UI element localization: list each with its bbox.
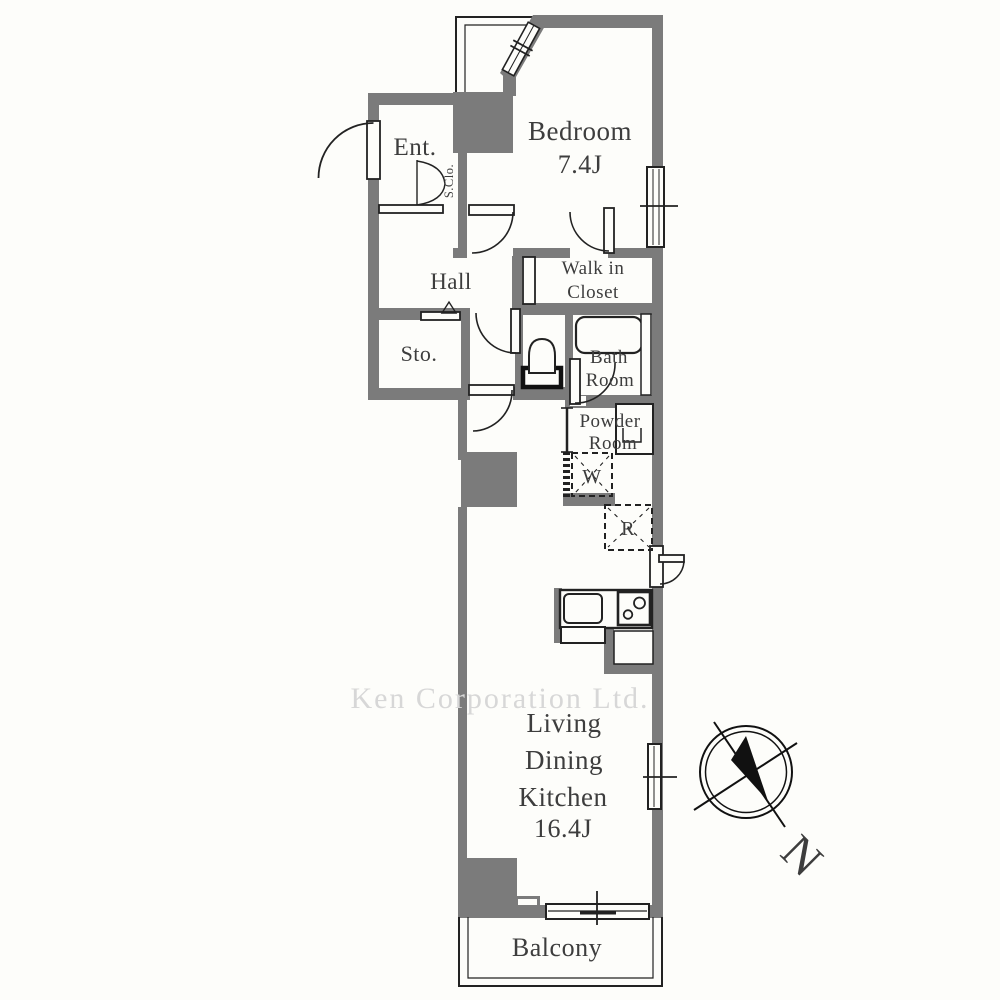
bathroom-label-1: Bath — [590, 347, 628, 368]
compass-needle-icon — [731, 736, 768, 801]
wc-door-icon — [476, 309, 520, 353]
shoe-closet-label: S.Clo. — [442, 164, 456, 198]
powder-room-label-1: Powder — [579, 411, 640, 432]
entrance-step — [379, 205, 443, 213]
toilet-icon — [523, 339, 561, 387]
pillar — [458, 858, 517, 907]
walk-in-closet-label-1: Walk in — [562, 258, 625, 279]
pillar — [453, 92, 513, 153]
ldk-label-3: Kitchen — [519, 782, 608, 812]
powder-room-label-2: Room — [589, 433, 637, 454]
refrigerator-label: R — [621, 518, 635, 540]
bathroom-label-2: Room — [586, 370, 634, 391]
storage-label: Sto. — [401, 341, 438, 366]
washer-label: W — [582, 466, 601, 488]
ldk-label-2: Dining — [525, 745, 603, 775]
shoe-closet-bifold-icon — [417, 160, 445, 206]
bedroom-size-label: 7.4J — [558, 150, 603, 179]
hall-label: Hall — [430, 269, 472, 294]
wic-sliding-panel-icon — [523, 257, 535, 304]
watermark: Ken Corporation Ltd. — [350, 682, 649, 715]
ldk-label-1: Living — [527, 708, 602, 738]
bedroom-window-icon — [640, 167, 678, 247]
floor-plan-page: N Ken Corporation Ltd. Bedroom 7.4J Ent.… — [0, 0, 1000, 1000]
corner-window-icon — [498, 20, 543, 78]
bedroom-label: Bedroom — [528, 116, 632, 146]
floor-plan: N Ken Corporation Ltd. Bedroom 7.4J Ent.… — [0, 0, 1000, 1000]
pillar — [461, 452, 517, 507]
balcony-label: Balcony — [512, 933, 602, 962]
ldk-window-icon — [643, 744, 677, 809]
entrance-door-icon — [319, 121, 381, 179]
compass-north-label: N — [771, 825, 833, 887]
ldk-size-label: 16.4J — [534, 814, 592, 843]
hall-door-icon — [469, 385, 514, 431]
fixtures — [523, 314, 653, 664]
service-door-icon — [650, 546, 684, 587]
walk-in-closet-label-2: Closet — [567, 282, 619, 303]
walkin-closet-door-icon — [570, 208, 614, 253]
powder-room-slider-icon — [561, 408, 573, 452]
stove-icon — [618, 592, 650, 625]
sink-icon — [564, 594, 602, 623]
entrance-label: Ent. — [394, 134, 437, 161]
balcony-sliding-window-icon — [546, 891, 649, 925]
compass: N — [694, 722, 833, 887]
bedroom-door-icon — [469, 205, 514, 253]
